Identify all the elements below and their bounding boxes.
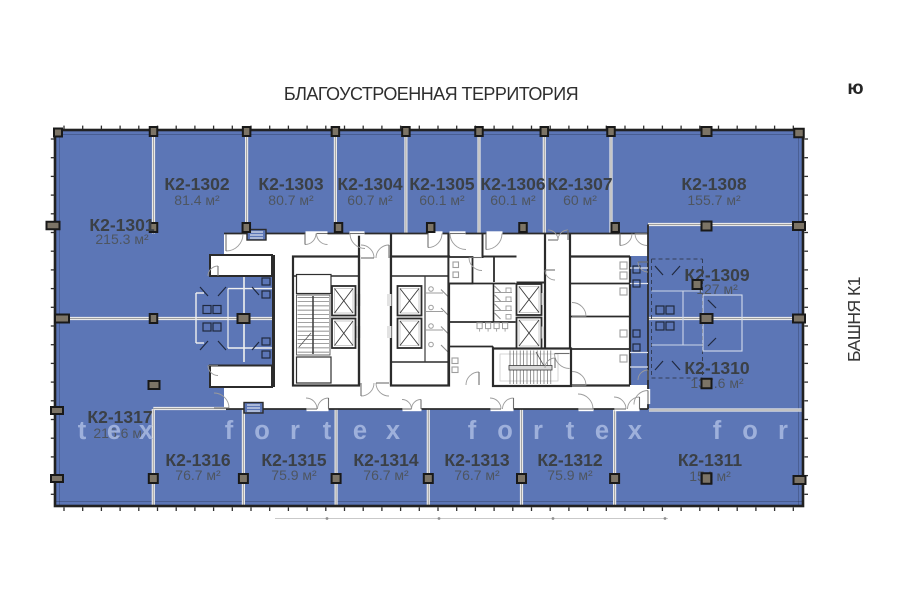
svg-text:f: f [468,417,477,445]
svg-text:К2-1304: К2-1304 [337,174,402,194]
svg-text:К2-1307: К2-1307 [547,174,612,194]
svg-text:e: e [595,417,609,445]
svg-text:r: r [533,417,543,445]
svg-text:80.7 м²: 80.7 м² [268,192,314,208]
svg-text:К2-1305: К2-1305 [409,174,474,194]
svg-text:r: r [778,417,788,445]
svg-text:f: f [225,417,234,445]
svg-text:t: t [566,417,575,445]
svg-text:75.9 м²: 75.9 м² [271,467,317,483]
svg-text:215.3 м²: 215.3 м² [95,231,149,247]
svg-text:o: o [497,417,513,445]
svg-text:БЛАГОУСТРОЕННАЯ ТЕРРИТОРИЯ: БЛАГОУСТРОЕННАЯ ТЕРРИТОРИЯ [284,84,578,104]
svg-text:К2-1306: К2-1306 [480,174,545,194]
svg-text:x: x [386,417,400,445]
svg-text:127 м²: 127 м² [696,281,738,297]
svg-text:БАШНЯ К1: БАШНЯ К1 [844,277,864,362]
svg-text:76.7 м²: 76.7 м² [363,467,409,483]
svg-text:o: o [742,417,758,445]
svg-text:x: x [139,417,153,445]
svg-text:81.4 м²: 81.4 м² [174,192,220,208]
svg-text:137.6 м²: 137.6 м² [690,375,744,391]
svg-text:76.7 м²: 76.7 м² [454,467,500,483]
svg-text:o: o [254,417,270,445]
svg-text:75.9 м²: 75.9 м² [547,467,593,483]
svg-text:К2-1308: К2-1308 [681,174,746,194]
svg-text:r: r [290,417,300,445]
svg-text:76.7 м²: 76.7 м² [175,467,221,483]
svg-text:t: t [323,417,332,445]
svg-text:ю: ю [847,78,863,99]
svg-text:60.7 м²: 60.7 м² [347,192,393,208]
svg-text:e: e [353,417,367,445]
svg-text:К2-1311: К2-1311 [678,450,742,470]
svg-text:К2-1303: К2-1303 [258,174,323,194]
svg-text:155.7 м²: 155.7 м² [687,192,741,208]
svg-text:60 м²: 60 м² [563,192,597,208]
svg-text:f: f [713,417,722,445]
svg-text:t: t [78,417,87,445]
svg-text:e: e [107,417,121,445]
svg-text:60.1 м²: 60.1 м² [419,192,465,208]
svg-text:x: x [628,417,642,445]
svg-text:К2-1302: К2-1302 [164,174,229,194]
svg-text:60.1 м²: 60.1 м² [490,192,536,208]
